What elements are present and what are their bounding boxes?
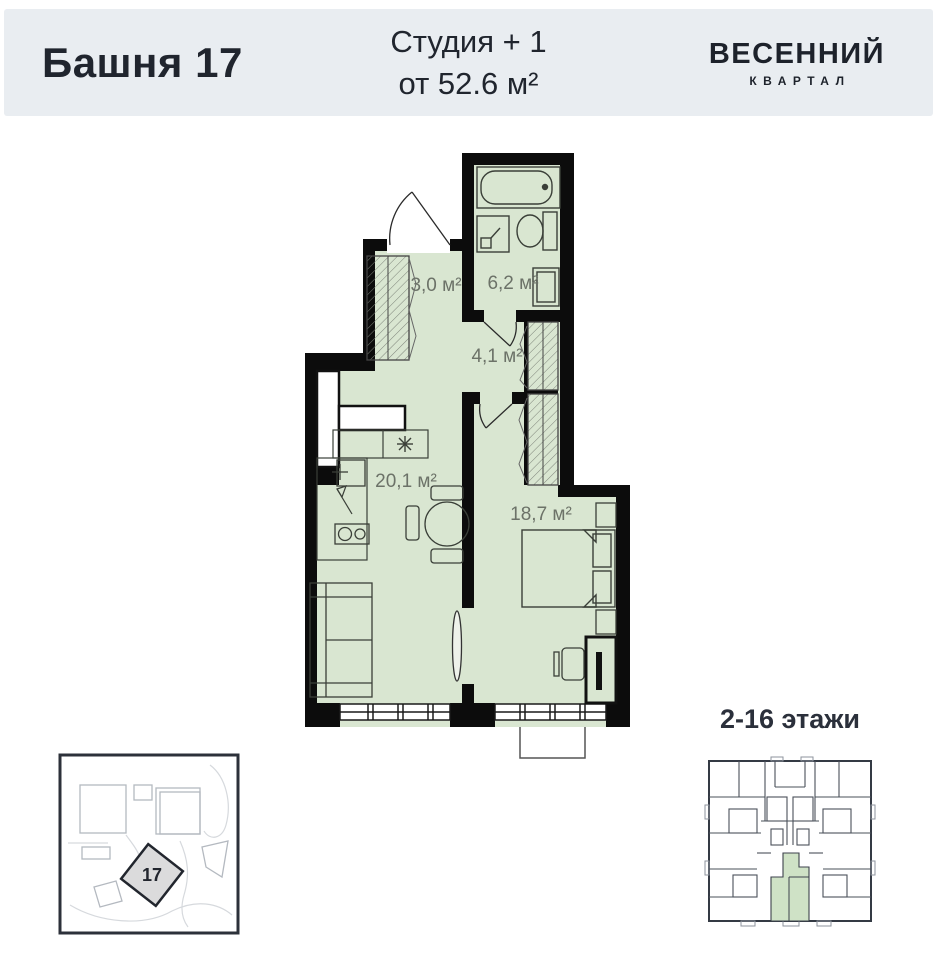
window-living bbox=[340, 704, 450, 720]
page: Башня 17 Студия + 1 от 52.6 м² ВЕСЕННИЙ … bbox=[0, 0, 937, 960]
room-label-entry: 3,0 м² bbox=[410, 275, 461, 296]
room-label-bedroom: 18,7 м² bbox=[510, 504, 572, 525]
site-plan: 17 bbox=[60, 755, 238, 933]
floor-plan: 3,0 м² 6,2 м² 4,1 м² 20,1 м² 18,7 м² bbox=[305, 153, 630, 758]
drawing-canvas: 3,0 м² 6,2 м² 4,1 м² 20,1 м² 18,7 м² bbox=[0, 0, 937, 960]
cooktop-symbol bbox=[397, 436, 413, 452]
entry-wardrobe bbox=[367, 256, 416, 360]
floor-plate-unit-highlight bbox=[771, 853, 809, 921]
room-label-kitchen-living: 20,1 м² bbox=[375, 471, 437, 492]
room-label-bathroom: 6,2 м² bbox=[487, 273, 538, 294]
floor-plate bbox=[705, 757, 875, 926]
window-bedroom bbox=[495, 704, 606, 720]
room-label-corridor: 4,1 м² bbox=[471, 346, 522, 367]
balcony bbox=[520, 727, 585, 758]
entry-door-arc bbox=[387, 192, 450, 253]
site-building-number: 17 bbox=[142, 865, 162, 885]
bedroom-door-leaf bbox=[453, 611, 462, 681]
